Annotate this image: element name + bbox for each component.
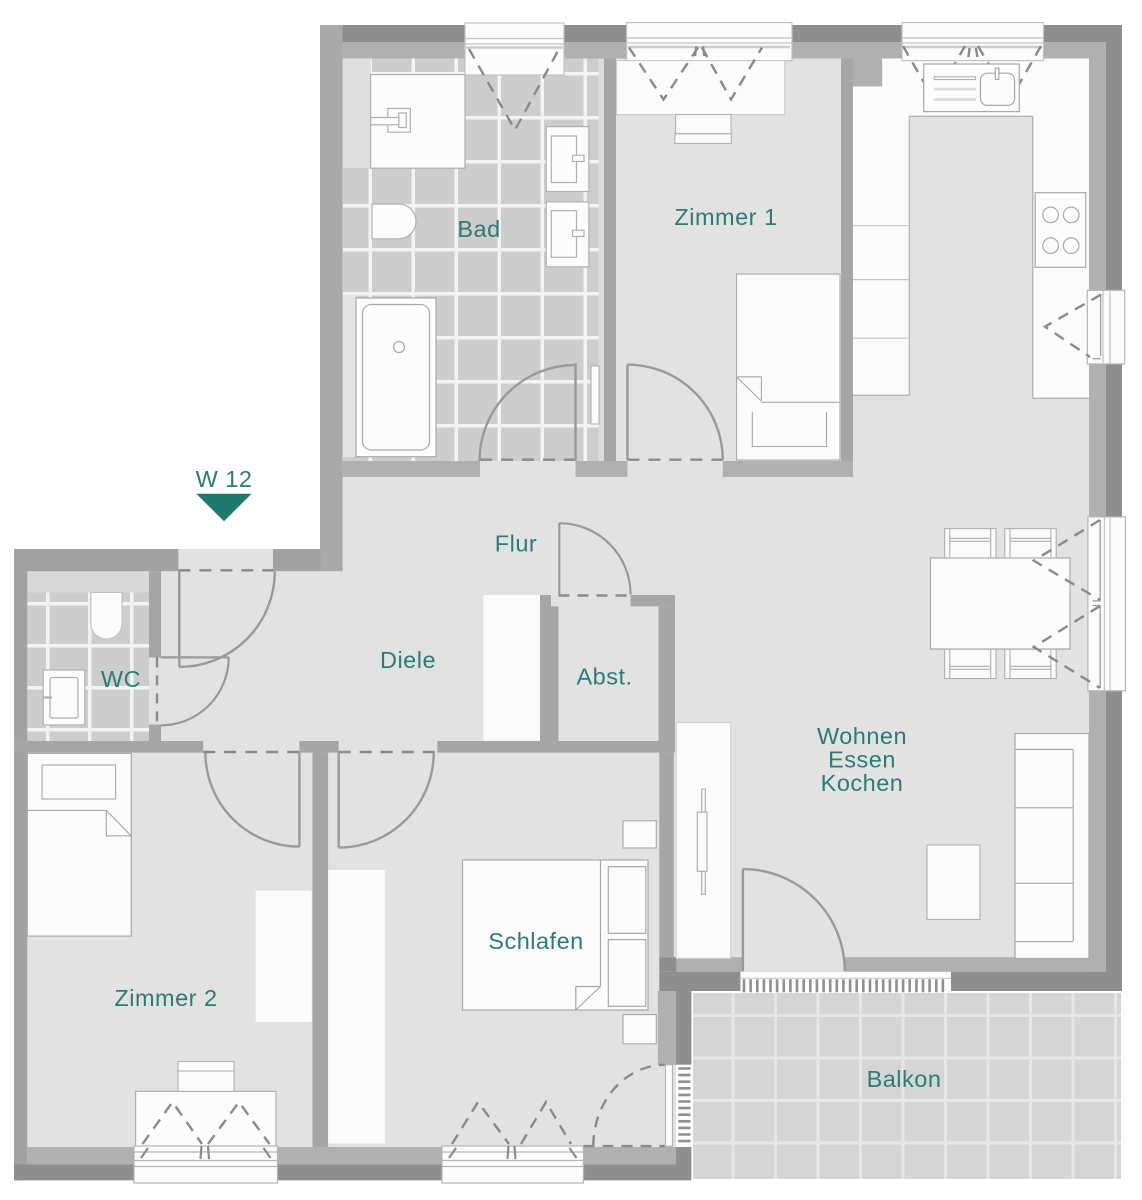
- svg-text:Zimmer 1: Zimmer 1: [674, 204, 777, 230]
- svg-text:Schlafen: Schlafen: [488, 928, 583, 954]
- svg-text:Wohnen: Wohnen: [817, 723, 907, 749]
- svg-text:Kochen: Kochen: [821, 770, 904, 796]
- svg-text:Diele: Diele: [380, 647, 436, 673]
- svg-text:Flur: Flur: [495, 531, 537, 557]
- svg-text:Bad: Bad: [457, 216, 500, 242]
- svg-text:Balkon: Balkon: [867, 1066, 942, 1092]
- svg-text:W 12: W 12: [196, 466, 253, 492]
- svg-text:Essen: Essen: [828, 747, 896, 773]
- svg-text:WC: WC: [101, 666, 141, 692]
- svg-text:Zimmer 2: Zimmer 2: [114, 985, 217, 1011]
- svg-text:Abst.: Abst.: [576, 664, 632, 690]
